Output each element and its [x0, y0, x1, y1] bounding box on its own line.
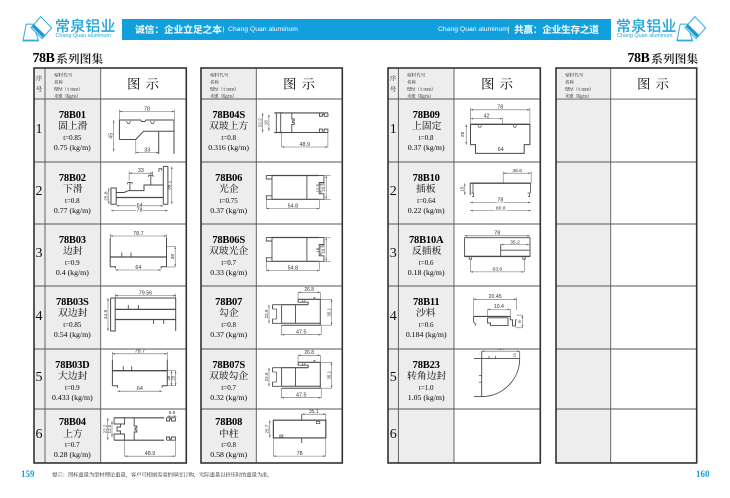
svg-text:23.9: 23.9 [264, 372, 269, 381]
svg-text:26.8: 26.8 [305, 350, 315, 356]
svg-text:80.8: 80.8 [496, 205, 506, 211]
svg-text:35.1: 35.1 [327, 307, 332, 316]
svg-text:6.5: 6.5 [169, 410, 176, 416]
svg-text:54.8: 54.8 [288, 265, 299, 271]
svg-text:20.45: 20.45 [489, 294, 502, 300]
svg-text:64: 64 [498, 147, 504, 153]
svg-text:10.4: 10.4 [494, 304, 504, 310]
svg-text:12.5: 12.5 [107, 424, 112, 433]
svg-text:25.8: 25.8 [104, 191, 110, 201]
svg-text:6: 6 [517, 320, 523, 323]
svg-text:78: 78 [494, 231, 500, 237]
svg-text:42: 42 [484, 113, 490, 119]
svg-text:78: 78 [144, 106, 150, 112]
svg-text:48.9: 48.9 [300, 142, 311, 148]
svg-text:45: 45 [109, 133, 115, 139]
svg-text:64: 64 [137, 386, 143, 392]
svg-text:78.7: 78.7 [135, 349, 145, 355]
svg-text:35.1: 35.1 [309, 409, 319, 415]
svg-text:25.7: 25.7 [265, 424, 270, 433]
svg-text:12.5: 12.5 [316, 183, 321, 192]
svg-text:47.5: 47.5 [296, 330, 307, 336]
svg-text:36.6: 36.6 [512, 168, 522, 174]
svg-text:23.9: 23.9 [264, 309, 269, 318]
svg-text:44.9: 44.9 [103, 310, 109, 320]
svg-text:35.2: 35.2 [510, 239, 520, 245]
svg-text:33: 33 [138, 168, 144, 174]
svg-text:38: 38 [170, 254, 176, 260]
svg-text:78: 78 [497, 105, 503, 111]
svg-text:38.1: 38.1 [167, 180, 173, 190]
svg-text:18: 18 [316, 247, 321, 252]
svg-text:15: 15 [513, 353, 517, 357]
svg-text:78.7: 78.7 [497, 349, 506, 351]
svg-text:78.7: 78.7 [133, 231, 143, 237]
svg-text:47.5: 47.5 [296, 393, 307, 399]
svg-text:33: 33 [144, 147, 150, 153]
svg-text:63.6: 63.6 [492, 267, 502, 273]
svg-text:78: 78 [497, 197, 503, 203]
svg-text:18: 18 [264, 120, 269, 126]
svg-text:54.8: 54.8 [288, 203, 299, 209]
svg-text:78: 78 [137, 208, 143, 214]
svg-text:23.9: 23.9 [321, 245, 326, 254]
svg-text:26.8: 26.8 [305, 287, 315, 293]
svg-text:23.9: 23.9 [321, 183, 326, 192]
svg-text:35.1: 35.1 [327, 370, 332, 379]
svg-text:28: 28 [460, 131, 466, 137]
svg-text:78: 78 [297, 451, 303, 457]
svg-text:15: 15 [460, 186, 466, 192]
svg-text:29: 29 [171, 375, 176, 380]
svg-text:22.2: 22.2 [258, 118, 263, 127]
svg-text:64: 64 [136, 265, 142, 271]
svg-text:79.56: 79.56 [139, 290, 152, 296]
svg-text:48.9: 48.9 [145, 451, 155, 457]
